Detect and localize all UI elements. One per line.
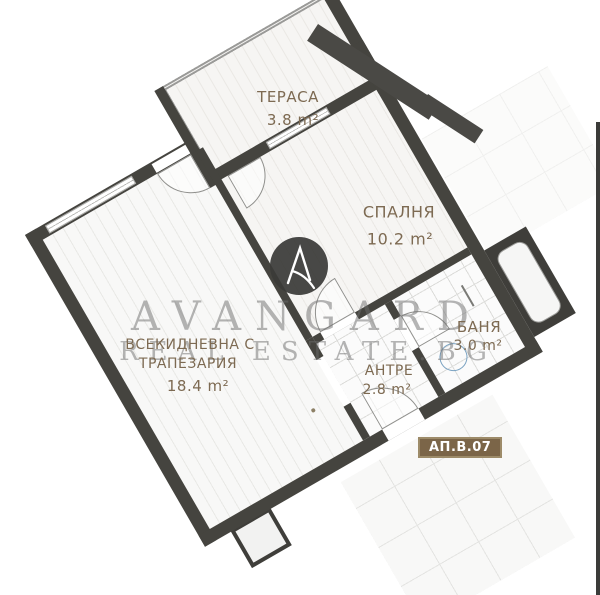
brand-logo (269, 236, 329, 296)
floorplan-stage: AVANGARD REAL ESTATE.BG ТЕРАСА 3.8 m² СП… (0, 0, 600, 595)
room-area-bedroom: 10.2 m² (367, 230, 433, 249)
room-area-bathroom: 3.0 m² (454, 338, 503, 354)
brand-logo-svg (269, 236, 329, 296)
room-label-bedroom: СПАЛНЯ (363, 203, 435, 222)
room-label-hallway: АНТРЕ (365, 363, 413, 379)
room-label-living-1: ВСЕКИДНЕВНА С (125, 337, 254, 353)
apartment-code-badge: АП.В.07 (418, 437, 502, 458)
room-area-living: 18.4 m² (167, 377, 229, 395)
room-area-hallway: 2.8 m² (363, 382, 412, 398)
image-edge-strip (596, 122, 600, 595)
watermark-brand: AVANGARD (117, 294, 483, 340)
room-area-terrace: 3.8 m² (267, 111, 319, 129)
room-label-terrace: ТЕРАСА (257, 88, 319, 106)
room-label-bathroom: БАНЯ (457, 318, 501, 336)
room-label-living-2: ТРАПЕЗАРИЯ (139, 356, 237, 372)
